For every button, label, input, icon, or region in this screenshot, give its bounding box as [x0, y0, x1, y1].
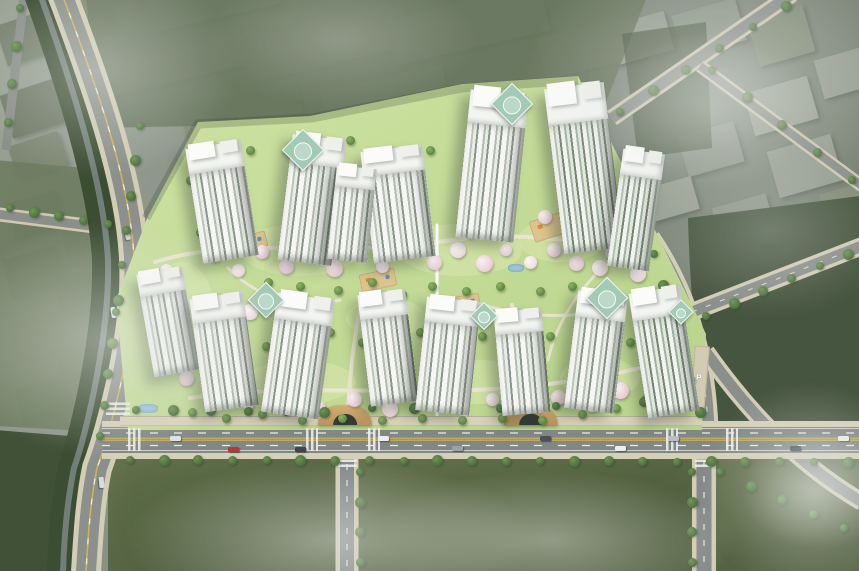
aerial-site-rendering: P — [0, 0, 859, 571]
haze-layer — [0, 0, 859, 571]
haze-patch — [200, 0, 480, 110]
haze-patch — [0, 220, 280, 460]
